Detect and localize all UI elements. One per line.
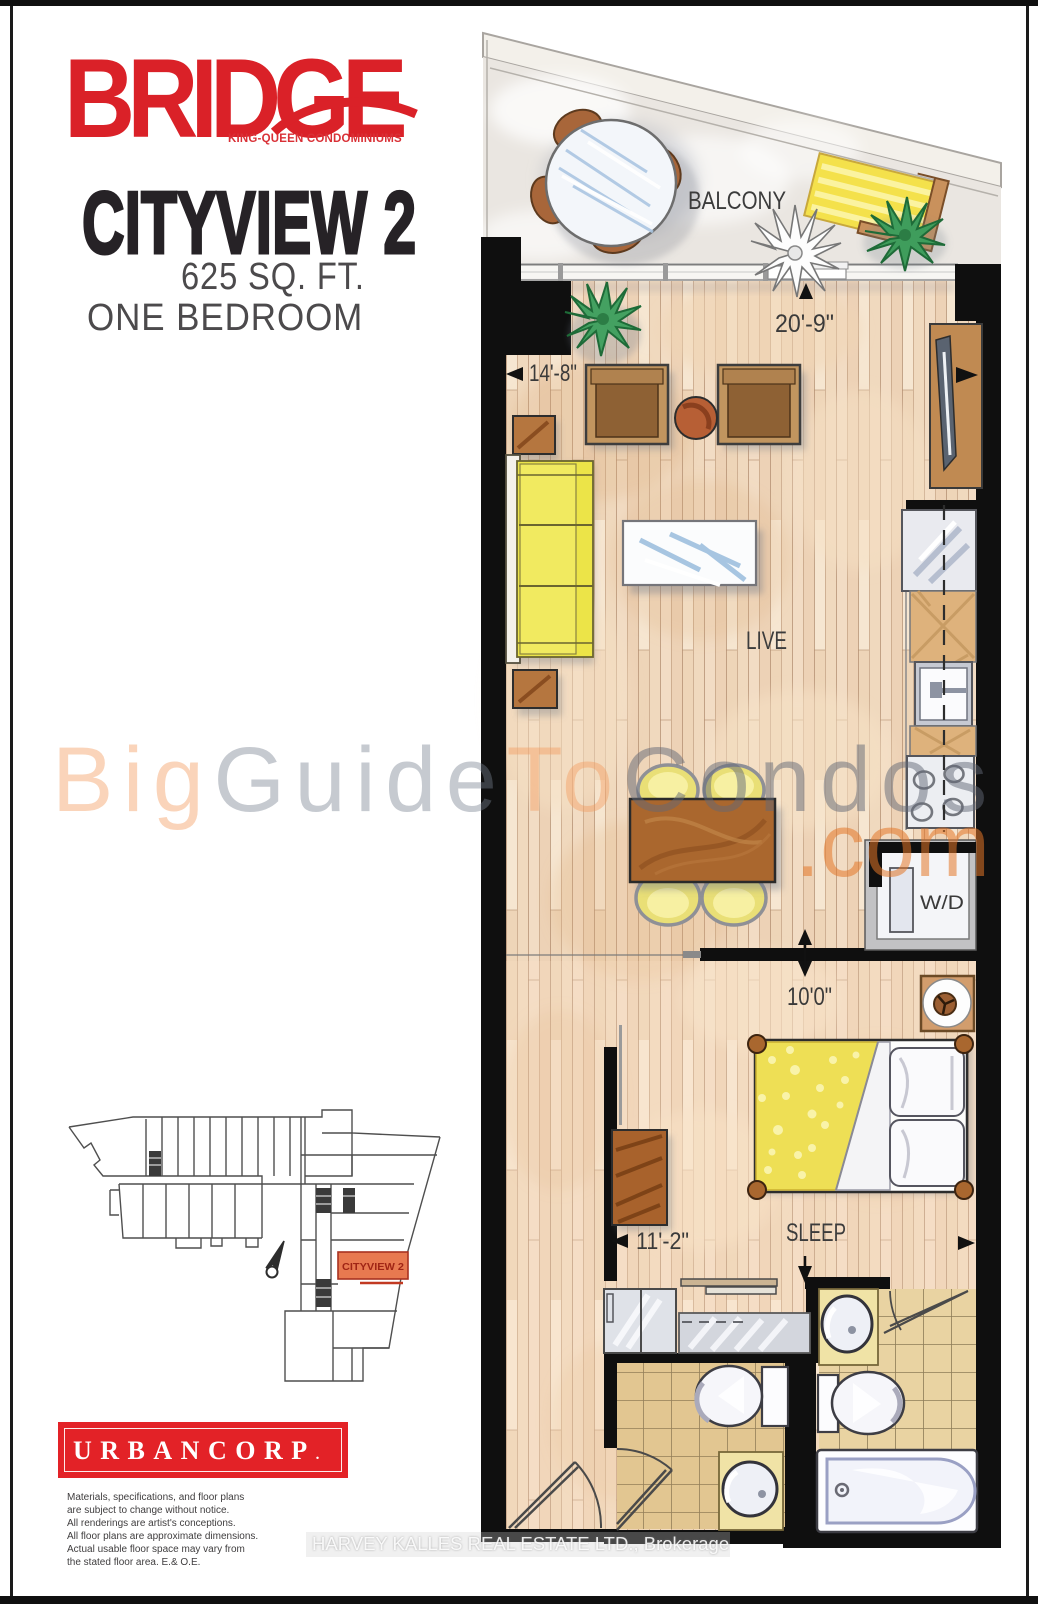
svg-text:14'-8": 14'-8" bbox=[529, 360, 577, 387]
svg-text:CITYVIEW 2: CITYVIEW 2 bbox=[342, 1262, 404, 1273]
svg-text:LIVE: LIVE bbox=[746, 627, 787, 655]
svg-text:10'0": 10'0" bbox=[787, 983, 832, 1011]
svg-text:11'-2": 11'-2" bbox=[636, 1228, 689, 1255]
svg-text:20'-9": 20'-9" bbox=[775, 310, 834, 338]
svg-text:BALCONY: BALCONY bbox=[688, 187, 786, 215]
svg-text:SLEEP: SLEEP bbox=[786, 1219, 846, 1247]
